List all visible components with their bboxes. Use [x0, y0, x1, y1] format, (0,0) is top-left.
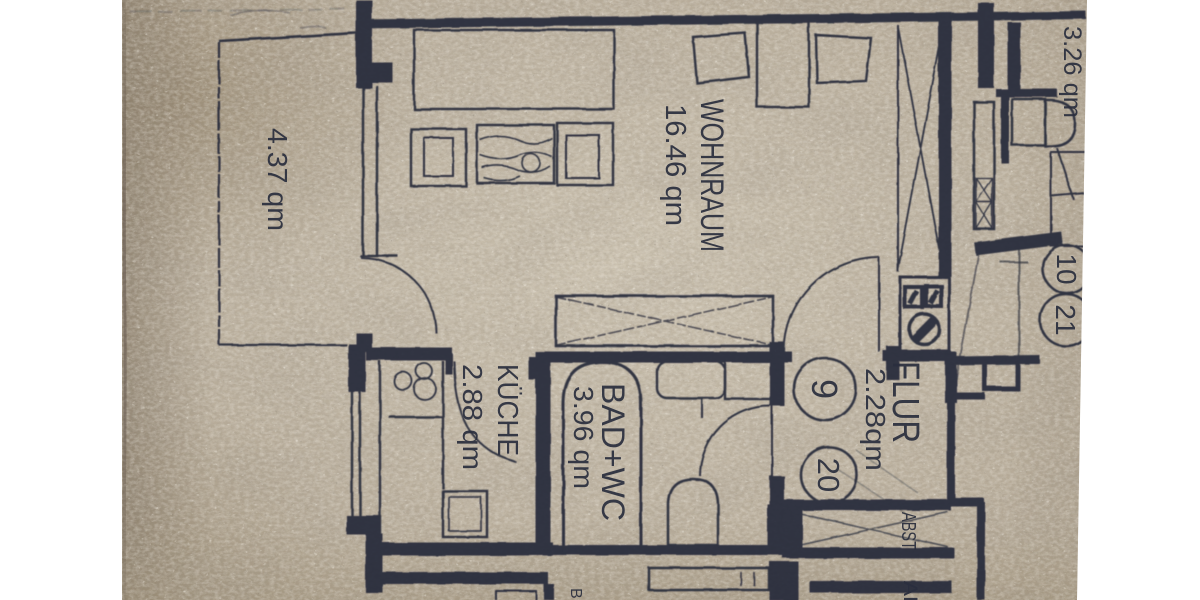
svg-text:2.88 qm: 2.88 qm: [457, 364, 488, 470]
svg-text:20: 20: [811, 458, 846, 492]
svg-text:B: B: [567, 588, 584, 599]
svg-text:KÜCHE: KÜCHE: [491, 364, 523, 456]
svg-text:3.26 qm: 3.26 qm: [1058, 26, 1086, 118]
svg-text:4.37 qm: 4.37 qm: [262, 128, 293, 231]
svg-text:2.28qm: 2.28qm: [860, 368, 891, 471]
svg-text:BAD+WC: BAD+WC: [595, 383, 631, 521]
svg-text:ABST: ABST: [897, 512, 919, 550]
svg-text:16.46 qm: 16.46 qm: [659, 104, 691, 226]
svg-text:9: 9: [804, 379, 845, 399]
svg-text:21: 21: [1050, 304, 1081, 335]
svg-text:10: 10: [1051, 253, 1082, 284]
svg-text:3.96 qm: 3.96 qm: [568, 386, 599, 489]
svg-text:WOHNRAUM: WOHNRAUM: [694, 99, 730, 252]
svg-text:AB: AB: [899, 581, 920, 600]
